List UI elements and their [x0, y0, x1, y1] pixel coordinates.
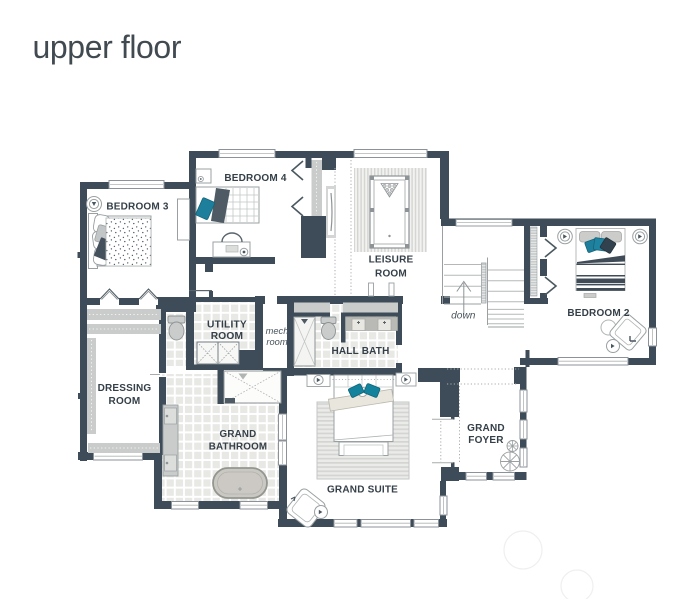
svg-text:GRAND SUITE: GRAND SUITE — [327, 485, 398, 496]
svg-text:ROOM: ROOM — [375, 269, 407, 280]
svg-text:BEDROOM 3: BEDROOM 3 — [106, 202, 169, 213]
svg-text:BATHROOM: BATHROOM — [209, 442, 268, 453]
svg-text:ROOM: ROOM — [109, 396, 141, 407]
svg-text:BEDROOM 4: BEDROOM 4 — [224, 173, 287, 184]
svg-text:BEDROOM 2: BEDROOM 2 — [567, 308, 630, 319]
svg-text:ROOM: ROOM — [211, 331, 244, 342]
svg-text:mech: mech — [266, 326, 289, 336]
svg-text:HALL BATH: HALL BATH — [331, 346, 389, 357]
svg-text:down: down — [451, 311, 476, 322]
svg-text:FOYER: FOYER — [468, 435, 504, 446]
svg-text:GRAND: GRAND — [467, 423, 505, 434]
svg-text:GRAND: GRAND — [220, 429, 257, 440]
svg-text:DRESSING: DRESSING — [98, 383, 152, 394]
svg-text:UTILITY: UTILITY — [207, 320, 247, 331]
svg-text:room: room — [266, 337, 287, 347]
svg-text:upper floor: upper floor — [33, 29, 182, 65]
svg-text:LEISURE: LEISURE — [369, 255, 414, 266]
